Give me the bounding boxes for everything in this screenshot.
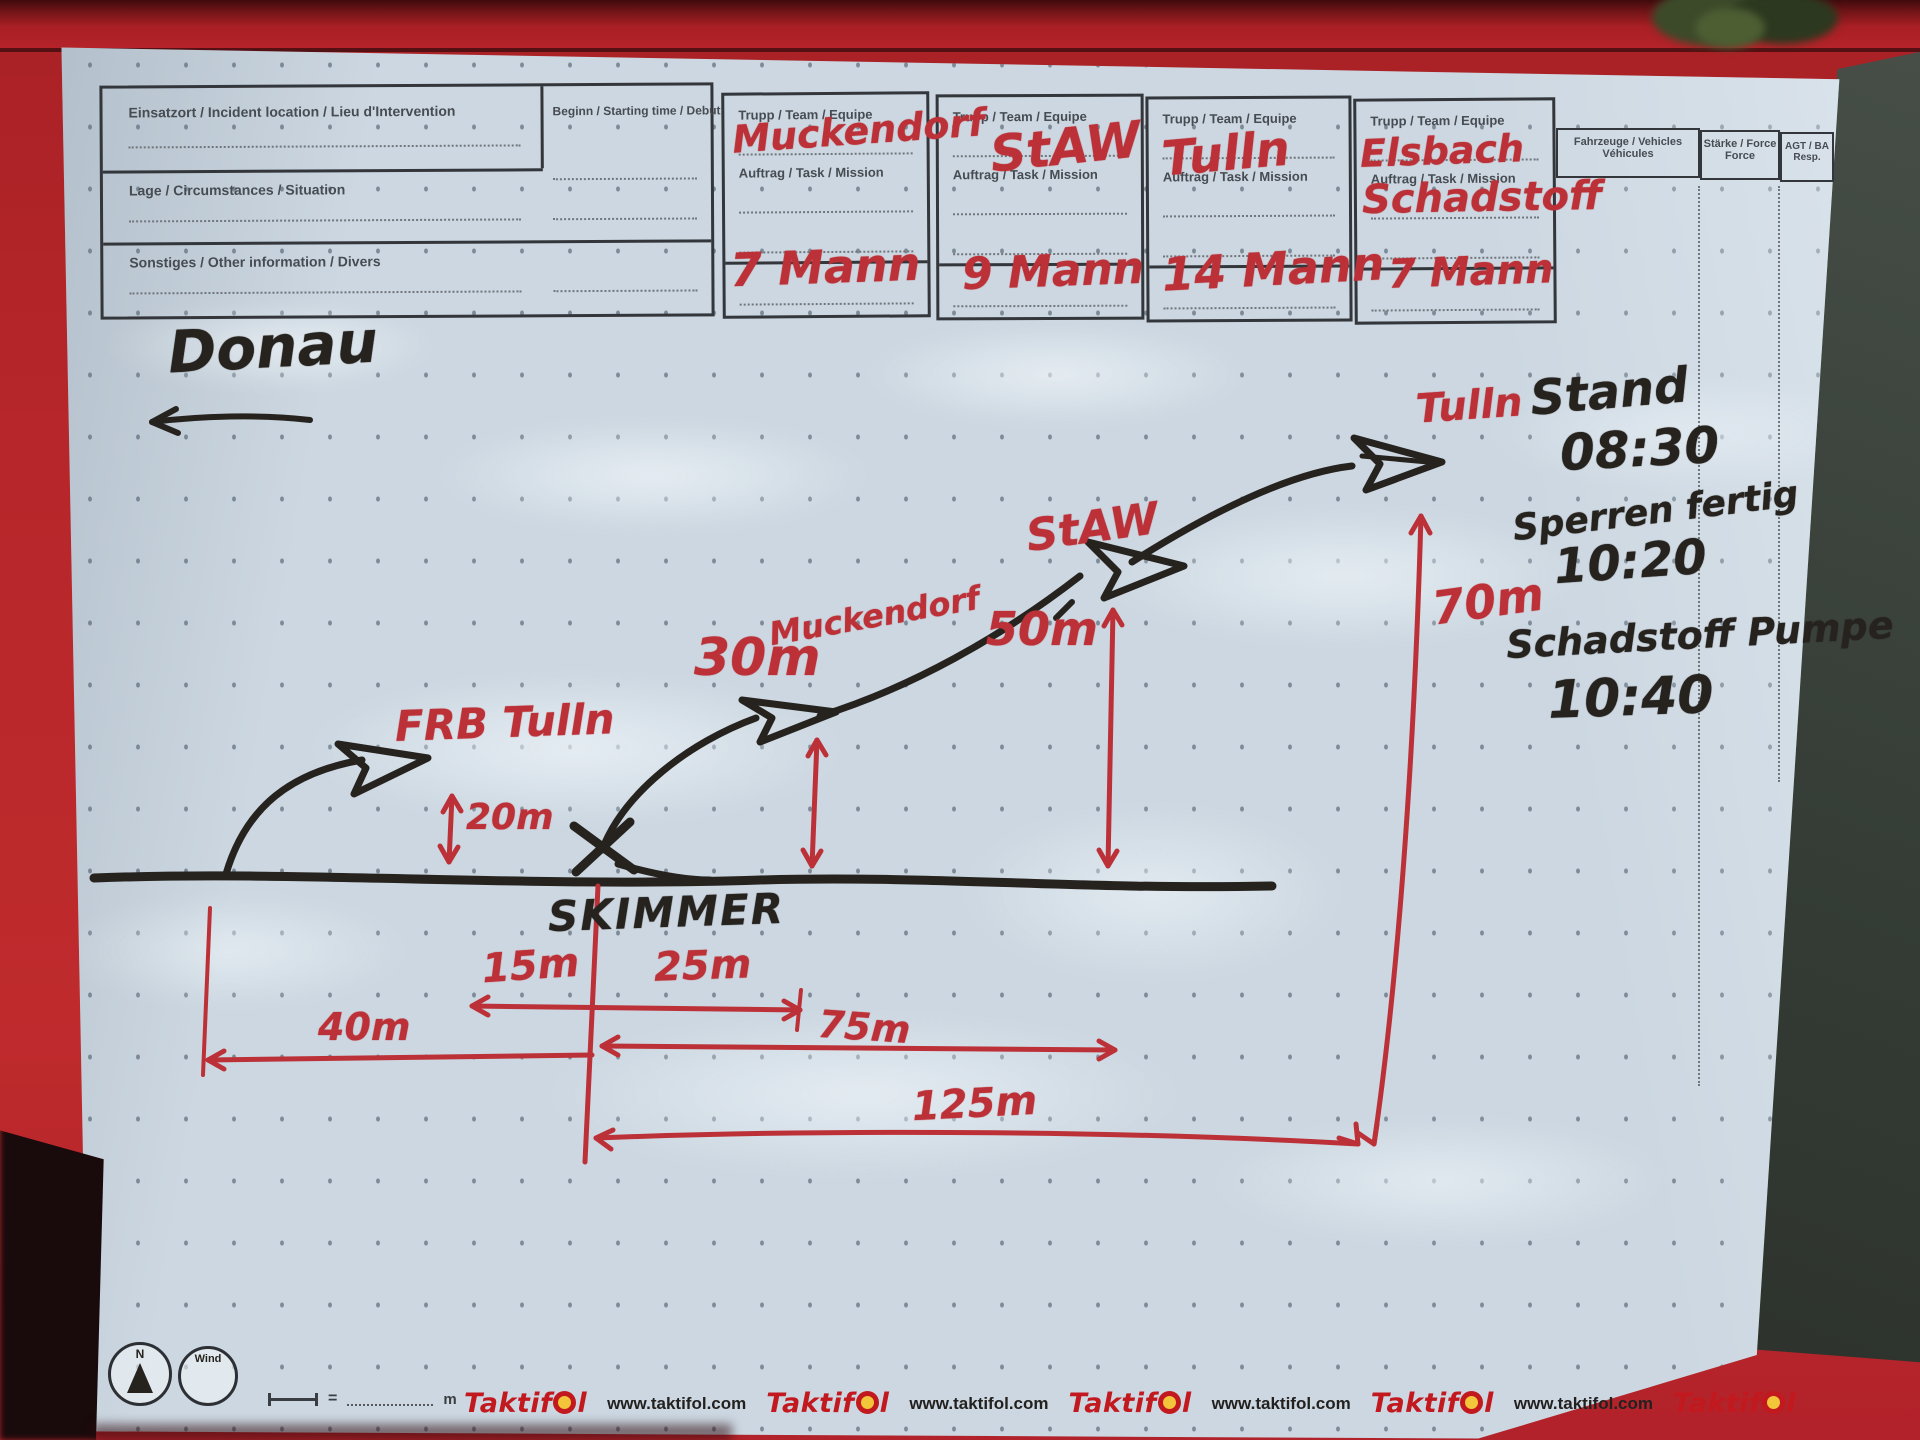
distance-125m: 125m [911, 1081, 1038, 1127]
agt-label-2: Resp. [1782, 152, 1832, 163]
fahrzeuge-box: Fahrzeuge / Vehicles Véhicules [1556, 128, 1700, 178]
river-name-label: Donau [167, 313, 379, 382]
team-4-task: Schadstoff [1362, 176, 1603, 220]
note-stand: Stand [1528, 361, 1690, 423]
lage-label: Lage / Circumstances / Situation [129, 181, 345, 198]
team-2-name: StAW [988, 114, 1143, 180]
brand-url: www.taktifol.com [1212, 1394, 1351, 1414]
incident-form-box: Einsatzort / Incident location / Lieu d'… [99, 82, 714, 319]
team-3-name: Tulln [1160, 125, 1292, 184]
staerke-label-2: Force [1702, 150, 1778, 162]
distance-75m: 75m [817, 1005, 912, 1049]
strength-field [740, 302, 914, 305]
distance-15m: 15m [481, 943, 581, 990]
sonstiges-field [129, 290, 521, 294]
brand-url: www.taktifol.com [909, 1394, 1048, 1414]
compass-needle [127, 1363, 153, 1393]
einsatzort-label: Einsatzort / Incident location / Lieu d'… [128, 103, 455, 121]
sonstiges-label: Sonstiges / Other information / Divers [129, 253, 380, 270]
agt-box: AGT / BA Resp. [1780, 132, 1834, 182]
team-2-strength: 9 Mann [961, 247, 1144, 297]
staerke-box: Stärke / Force Force [1700, 130, 1780, 180]
trupp-label: Trupp / Team / Equipe [1370, 113, 1504, 129]
task-field [739, 210, 913, 213]
distance-40m: 40m [318, 1008, 410, 1046]
logo-o-icon [1762, 1391, 1785, 1414]
height-50m: 50m [986, 606, 1098, 652]
note-stand-time: 08:30 [1559, 420, 1721, 478]
lage-field [129, 218, 521, 222]
team-4-name: Elsbach [1359, 129, 1524, 173]
team-4-strength: 7 Mann [1387, 249, 1554, 295]
auftrag-label: Auftrag / Task / Mission [739, 165, 884, 181]
note-schadstoff-time: 10:40 [1547, 669, 1714, 727]
scale-bar-icon [268, 1393, 318, 1406]
beginn-field-2 [553, 217, 697, 220]
task-field [953, 213, 1127, 216]
beginn-field-3 [553, 289, 697, 292]
fahrzeuge-label-2: Véhicules [1558, 148, 1698, 160]
compass-icon: N [108, 1342, 172, 1406]
height-20m: 20m [466, 800, 554, 836]
staerke-label: Stärke / Force [1702, 138, 1778, 150]
truck-roof-strip [0, 0, 1920, 52]
logo-o-icon [1460, 1391, 1483, 1414]
height-30m: 30m [694, 632, 821, 684]
taktifol-logo: Taktifl [766, 1388, 889, 1419]
taktifol-logo: Taktifl [464, 1388, 587, 1419]
brand-url: www.taktifol.com [607, 1394, 746, 1414]
distance-25m: 25m [653, 944, 752, 987]
beginn-field [553, 177, 697, 180]
form-divider [103, 168, 543, 173]
fahrzeuge-label: Fahrzeuge / Vehicles [1558, 136, 1698, 148]
strength-field [953, 305, 1127, 308]
einsatzort-field [129, 144, 521, 148]
wind-icon: Wind [178, 1346, 238, 1406]
brand-url: www.taktifol.com [1514, 1394, 1653, 1414]
foliage [1695, 8, 1765, 48]
team-3-strength: 14 Mann [1161, 240, 1385, 298]
task-field [1163, 215, 1335, 218]
scale-value-field [347, 1392, 433, 1406]
skimmer-label: SKIMMER [547, 888, 785, 938]
strength-field [1164, 307, 1336, 310]
scale-unit: m [443, 1391, 456, 1408]
logo-o-icon [1158, 1391, 1181, 1414]
scale-equals: = [328, 1390, 337, 1408]
note-sperren-time: 10:20 [1553, 533, 1709, 592]
form-divider-v [540, 86, 543, 168]
compass-n-label: N [111, 1347, 169, 1361]
bottom-shadow [92, 1424, 732, 1440]
scale-legend: = m [268, 1390, 457, 1408]
barrier-1-label: FRB Tulln [394, 698, 615, 748]
beginn-label: Beginn / Starting time / Debut [552, 103, 720, 118]
photo-of-tactical-board: Einsatzort / Incident location / Lieu d'… [0, 0, 1920, 1440]
team-1-strength: 7 Mann [729, 241, 921, 294]
wind-label: Wind [181, 1353, 235, 1365]
taktifol-logo: Taktifl [1371, 1388, 1494, 1419]
form-divider [103, 239, 711, 245]
logo-o-icon [856, 1391, 879, 1414]
barrier-4-label: Tulln [1415, 382, 1524, 429]
taktifol-logo: Taktifl [1673, 1388, 1796, 1419]
strength-field [1372, 308, 1540, 311]
brand-strip: Taktifl www.taktifol.com Taktifl www.tak… [464, 1388, 1796, 1419]
taktifol-logo: Taktifl [1069, 1388, 1192, 1419]
agt-label: AGT / BA [1782, 141, 1832, 152]
logo-o-icon [553, 1391, 576, 1414]
